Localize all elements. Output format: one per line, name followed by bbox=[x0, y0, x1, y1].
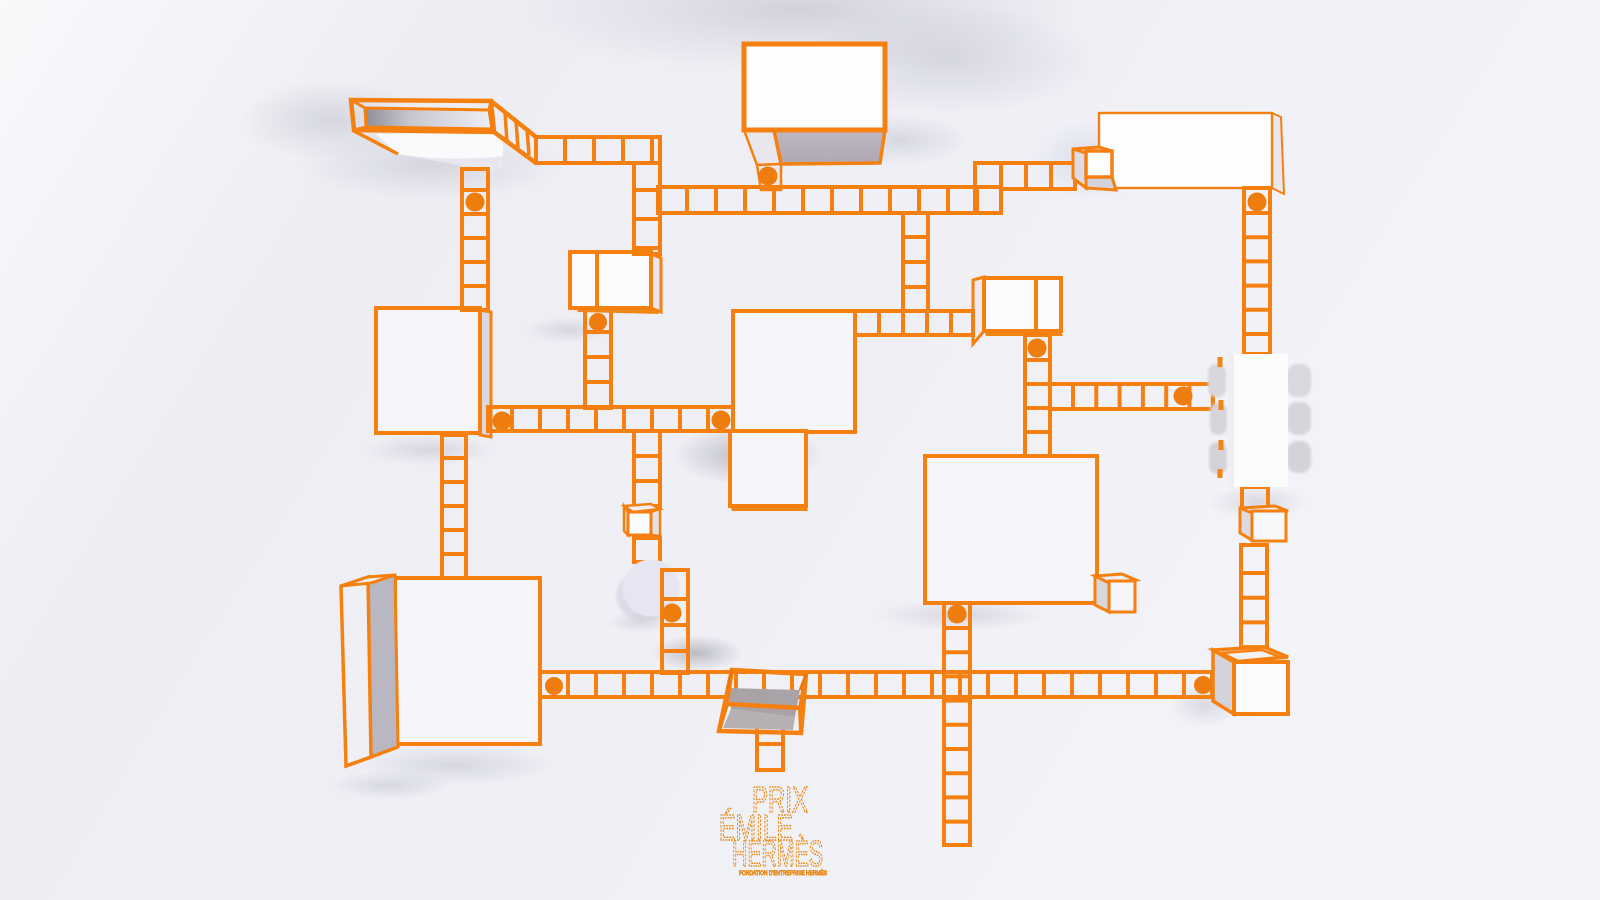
svg-text:FONDATION D'ENTREPRISE HERMÈS: FONDATION D'ENTREPRISE HERMÈS bbox=[739, 868, 827, 877]
svg-text:HERMÈS: HERMÈS bbox=[732, 833, 823, 874]
